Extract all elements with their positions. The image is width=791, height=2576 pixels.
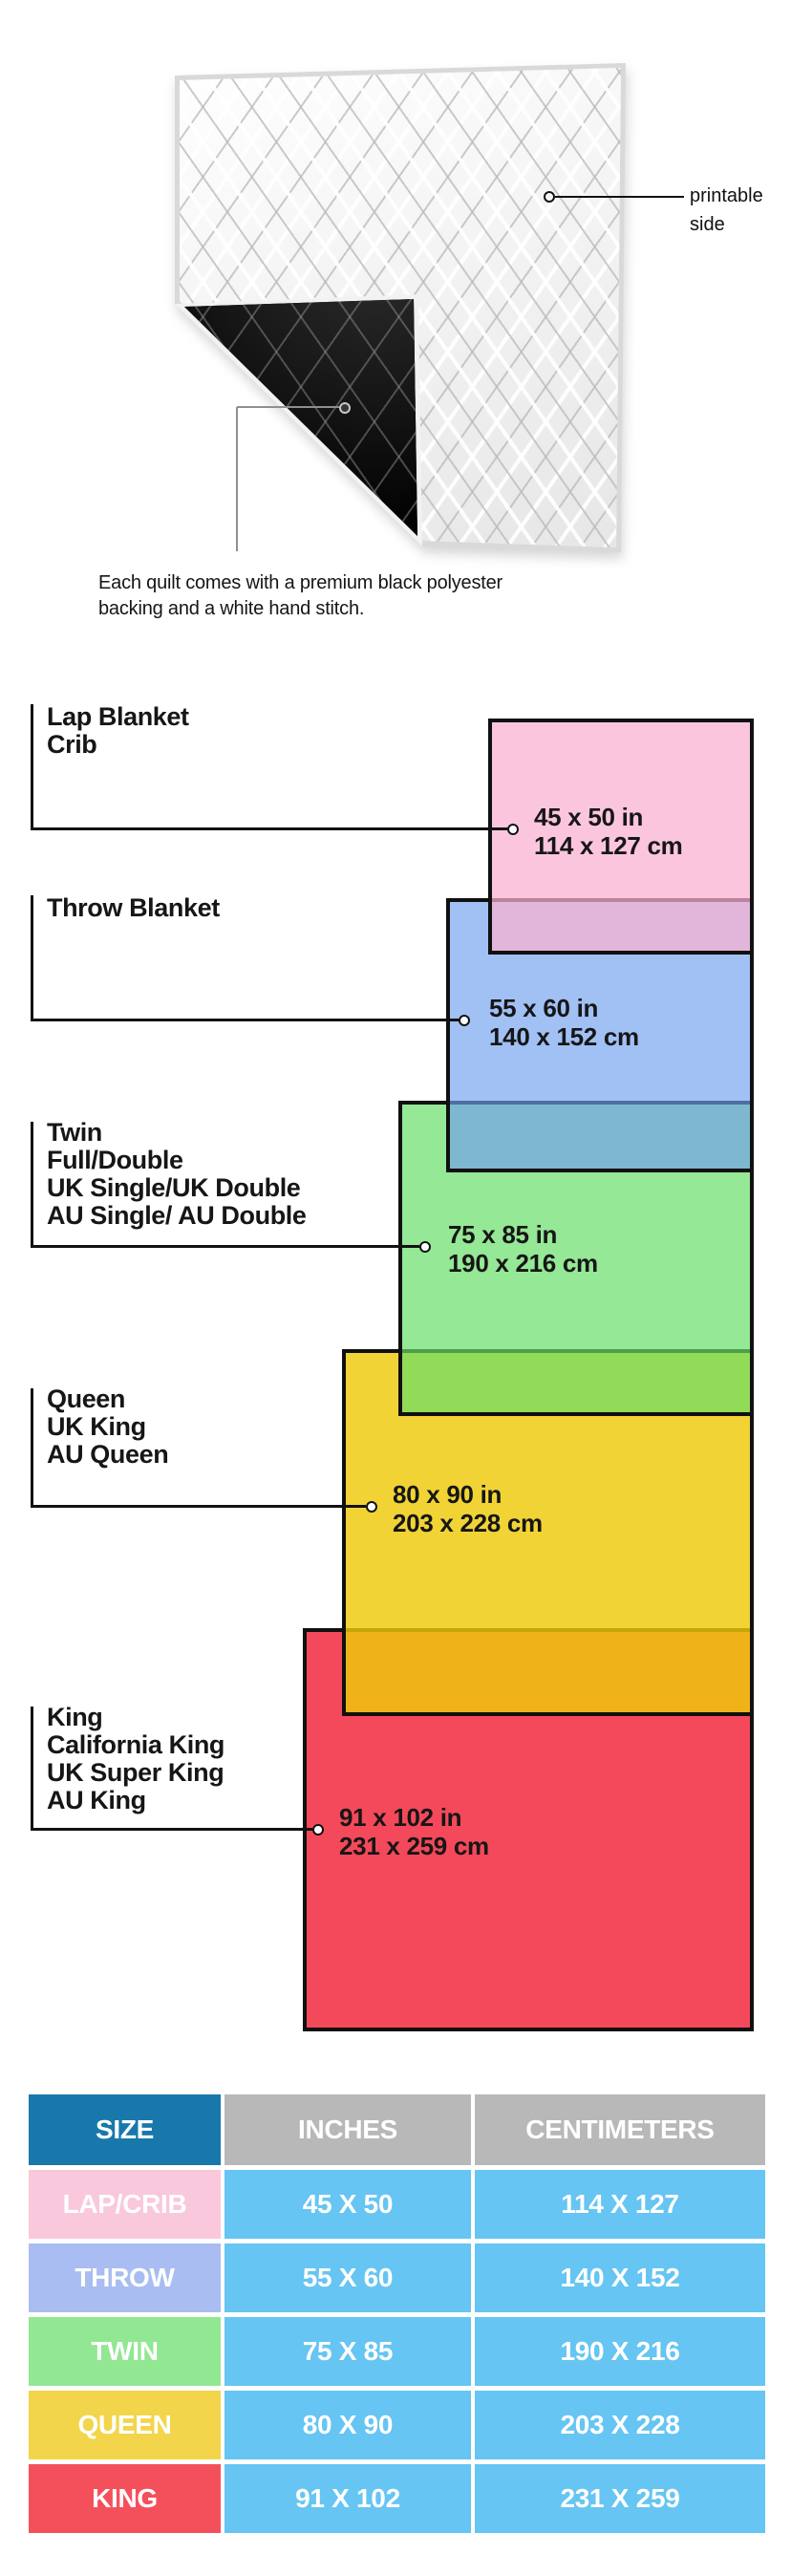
- twin-callout-line-h: [31, 1245, 419, 1248]
- lap-callout-line-h: [31, 827, 507, 830]
- quilt-photo: [172, 60, 626, 554]
- label-lap-crib: Lap Blanket Crib: [47, 703, 189, 759]
- label-line: Lap Blanket: [47, 703, 189, 731]
- lap-marker-icon: [507, 824, 519, 835]
- table-row-twin-inches: 75 X 85: [224, 2317, 471, 2386]
- backing-description-line: backing and a white hand stitch.: [98, 596, 502, 622]
- queen-callout-line-h: [31, 1505, 366, 1508]
- backing-description: Each quilt comes with a premium black po…: [98, 570, 502, 622]
- table-row-twin-size: TWIN: [29, 2317, 221, 2386]
- throw-callout-line-h: [31, 1019, 459, 1021]
- dim-inches: 45 x 50 in: [534, 803, 682, 831]
- label-line: UK Super King: [47, 1759, 224, 1787]
- dim-cm: 114 x 127 cm: [534, 831, 682, 860]
- label-line: AU Queen: [47, 1441, 168, 1469]
- twin-marker-icon: [419, 1241, 431, 1253]
- printable-side-label: printable side: [690, 182, 763, 239]
- throw-marker-icon: [459, 1015, 470, 1026]
- label-throw: Throw Blanket: [47, 894, 220, 922]
- printable-side-callout-line: [555, 196, 684, 198]
- table-row-throw-inches: 55 X 60: [224, 2243, 471, 2312]
- dim-inches: 91 x 102 in: [339, 1803, 489, 1832]
- backing-callout-line-v: [236, 407, 238, 551]
- label-line: AU King: [47, 1787, 224, 1814]
- throw-dimensions: 55 x 60 in 140 x 152 cm: [489, 994, 639, 1051]
- table-row-lap-cm: 114 X 127: [475, 2170, 765, 2239]
- printable-side-marker-icon: [544, 191, 555, 203]
- table-row-queen-cm: 203 X 228: [475, 2391, 765, 2459]
- queen-dimensions: 80 x 90 in 203 x 228 cm: [393, 1480, 543, 1537]
- label-twin: Twin Full/Double UK Single/UK Double AU …: [47, 1119, 307, 1230]
- printable-side-label-line: printable: [690, 182, 763, 210]
- label-line: King: [47, 1704, 224, 1731]
- table-row-king-inches: 91 X 102: [224, 2464, 471, 2533]
- lap-callout-line-v: [31, 704, 33, 830]
- dim-cm: 190 x 216 cm: [448, 1249, 598, 1277]
- label-line: UK King: [47, 1413, 168, 1441]
- throw-callout-line-v: [31, 895, 33, 1021]
- king-marker-icon: [312, 1824, 324, 1835]
- backing-callout-line-h: [237, 406, 339, 408]
- table-row-lap-size: LAP/CRIB: [29, 2170, 221, 2239]
- table-row-twin-cm: 190 X 216: [475, 2317, 765, 2386]
- table-row-lap-inches: 45 X 50: [224, 2170, 471, 2239]
- label-queen: Queen UK King AU Queen: [47, 1385, 168, 1469]
- king-callout-line-v: [31, 1707, 33, 1831]
- lap-dimensions: 45 x 50 in 114 x 127 cm: [534, 803, 682, 860]
- table-row-king-size: KING: [29, 2464, 221, 2533]
- dim-cm: 140 x 152 cm: [489, 1022, 639, 1051]
- table-header-inches: INCHES: [224, 2094, 471, 2165]
- table-header-centimeters: CENTIMETERS: [475, 2094, 765, 2165]
- label-line: Twin: [47, 1119, 307, 1147]
- label-line: UK Single/UK Double: [47, 1174, 307, 1202]
- size-table: SIZE INCHES CENTIMETERS LAP/CRIB 45 X 50…: [29, 2094, 765, 2533]
- table-row-throw-cm: 140 X 152: [475, 2243, 765, 2312]
- label-line: AU Single/ AU Double: [47, 1202, 307, 1230]
- quilt-front-fabric: [172, 60, 626, 554]
- backing-marker-icon: [339, 402, 351, 414]
- label-line: Throw Blanket: [47, 894, 220, 922]
- label-line: Queen: [47, 1385, 168, 1413]
- printable-side-label-line: side: [690, 210, 763, 239]
- table-row-queen-size: QUEEN: [29, 2391, 221, 2459]
- table-row-queen-inches: 80 X 90: [224, 2391, 471, 2459]
- twin-dimensions: 75 x 85 in 190 x 216 cm: [448, 1220, 598, 1277]
- label-line: California King: [47, 1731, 224, 1759]
- king-dimensions: 91 x 102 in 231 x 259 cm: [339, 1803, 489, 1860]
- label-line: Crib: [47, 731, 189, 759]
- product-infographic: printable side Each quilt comes with a p…: [0, 0, 791, 2576]
- twin-callout-line-v: [31, 1122, 33, 1248]
- backing-description-line: Each quilt comes with a premium black po…: [98, 570, 502, 596]
- label-king: King California King UK Super King AU Ki…: [47, 1704, 224, 1814]
- dim-cm: 203 x 228 cm: [393, 1509, 543, 1537]
- dim-inches: 55 x 60 in: [489, 994, 639, 1022]
- king-callout-line-h: [31, 1828, 312, 1831]
- table-row-king-cm: 231 X 259: [475, 2464, 765, 2533]
- label-line: Full/Double: [47, 1147, 307, 1174]
- dim-inches: 75 x 85 in: [448, 1220, 598, 1249]
- table-header-size: SIZE: [29, 2094, 221, 2165]
- table-row-throw-size: THROW: [29, 2243, 221, 2312]
- queen-callout-line-v: [31, 1388, 33, 1508]
- dim-cm: 231 x 259 cm: [339, 1832, 489, 1860]
- queen-marker-icon: [366, 1501, 377, 1513]
- dim-inches: 80 x 90 in: [393, 1480, 543, 1509]
